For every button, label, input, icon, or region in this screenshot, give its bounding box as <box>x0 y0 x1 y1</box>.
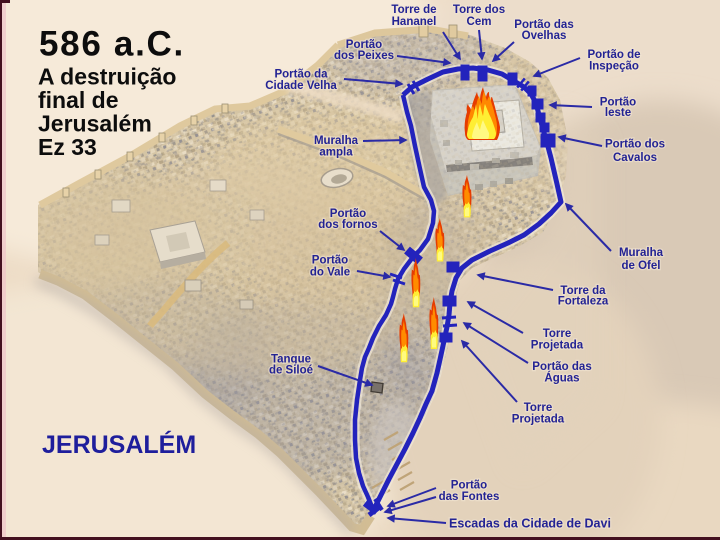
svg-text:Projetada: Projetada <box>512 414 565 426</box>
svg-text:Projetada: Projetada <box>531 340 584 352</box>
svg-text:Torre dos: Torre dos <box>453 4 505 16</box>
svg-text:Portão da: Portão da <box>274 69 328 81</box>
svg-text:de Ofel: de Ofel <box>622 260 661 272</box>
svg-text:final de: final de <box>38 87 119 113</box>
svg-text:dos Peixes: dos Peixes <box>334 50 394 62</box>
svg-text:do Vale: do Vale <box>310 267 350 279</box>
svg-text:Inspeção: Inspeção <box>589 61 639 73</box>
svg-text:Hananel: Hananel <box>392 16 437 28</box>
svg-text:Muralha: Muralha <box>619 247 664 259</box>
svg-text:ampla: ampla <box>319 147 353 159</box>
svg-text:Muralha: Muralha <box>314 135 359 147</box>
svg-text:Torre de: Torre de <box>391 4 436 16</box>
svg-text:Portão dos: Portão dos <box>605 139 665 151</box>
svg-text:Ez 33: Ez 33 <box>38 134 97 160</box>
svg-text:Escadas da Cidade de Davi: Escadas da Cidade de Davi <box>449 517 611 531</box>
svg-text:Portão de: Portão de <box>587 49 640 61</box>
svg-text:Fortaleza: Fortaleza <box>558 296 609 308</box>
svg-text:Jerusalém: Jerusalém <box>38 111 152 137</box>
svg-text:Cavalos: Cavalos <box>613 152 657 164</box>
svg-text:A destruição: A destruição <box>38 64 176 90</box>
svg-text:Cidade Velha: Cidade Velha <box>265 80 337 92</box>
svg-text:Águas: Águas <box>544 372 579 385</box>
svg-text:Portão das: Portão das <box>532 361 591 373</box>
svg-text:Torre: Torre <box>524 402 553 414</box>
svg-text:Cem: Cem <box>467 16 492 28</box>
svg-text:586 a.C.: 586 a.C. <box>39 25 185 64</box>
svg-text:Portão: Portão <box>451 480 487 492</box>
svg-text:JERUSALÉM: JERUSALÉM <box>42 430 196 459</box>
svg-text:Torre: Torre <box>543 328 572 340</box>
svg-text:das Fontes: das Fontes <box>439 491 500 503</box>
svg-text:dos fornos: dos fornos <box>318 219 377 231</box>
svg-text:de Siloé: de Siloé <box>269 365 313 377</box>
svg-text:Portão: Portão <box>312 255 348 267</box>
svg-text:Ovelhas: Ovelhas <box>522 30 567 42</box>
svg-text:leste: leste <box>605 107 631 119</box>
